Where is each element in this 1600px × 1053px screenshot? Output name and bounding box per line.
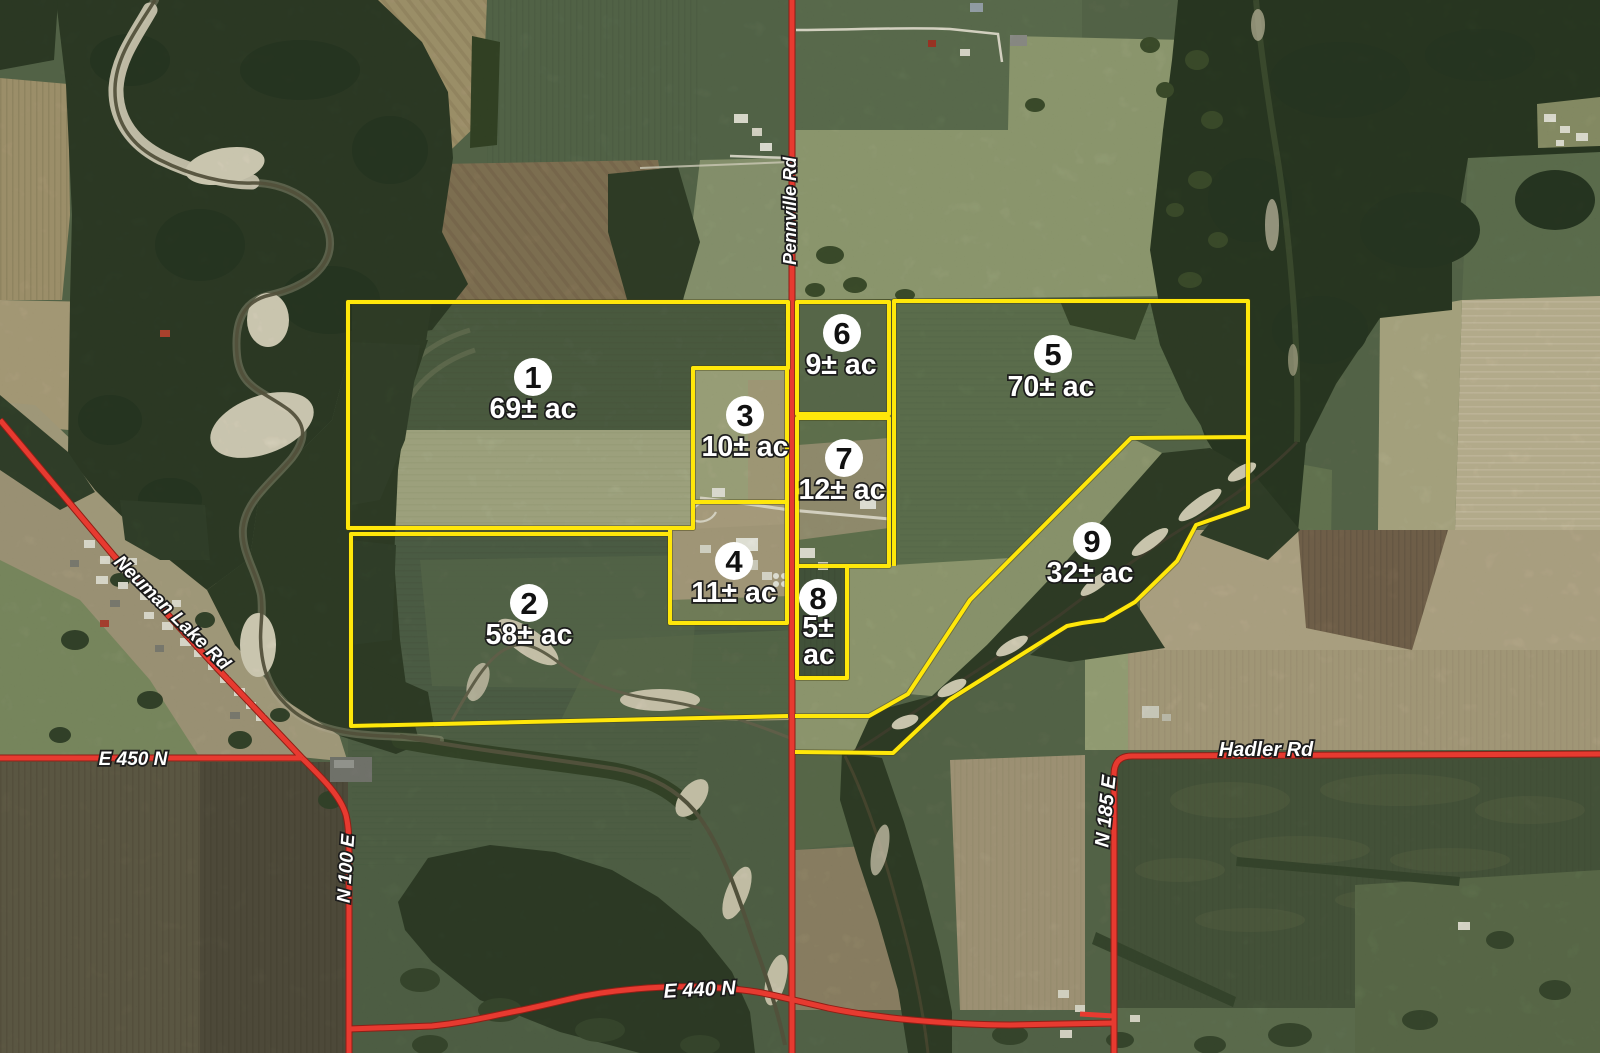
svg-text:8: 8 [809, 581, 826, 616]
svg-text:9: 9 [1083, 524, 1100, 559]
svg-text:E 450 N: E 450 N [99, 749, 169, 770]
svg-text:7: 7 [835, 441, 852, 476]
svg-text:1: 1 [524, 360, 541, 395]
svg-text:Hadler Rd: Hadler Rd [1219, 739, 1314, 761]
svg-text:10± ac: 10± ac [702, 431, 789, 463]
svg-text:12± ac: 12± ac [799, 474, 886, 506]
svg-text:6: 6 [833, 316, 850, 351]
svg-text:32± ac: 32± ac [1047, 557, 1134, 589]
svg-text:11± ac: 11± ac [691, 577, 777, 609]
svg-text:E 440 N: E 440 N [663, 977, 737, 1003]
svg-text:ac: ac [803, 639, 835, 671]
svg-text:3: 3 [736, 398, 753, 433]
svg-text:Pennville Rd: Pennville Rd [780, 156, 800, 265]
svg-text:4: 4 [725, 544, 743, 579]
svg-text:58± ac: 58± ac [486, 619, 573, 651]
svg-text:70± ac: 70± ac [1008, 371, 1095, 403]
svg-text:2: 2 [520, 586, 537, 621]
svg-text:5: 5 [1044, 337, 1061, 372]
svg-text:69± ac: 69± ac [490, 393, 577, 425]
svg-text:9± ac: 9± ac [805, 349, 876, 381]
